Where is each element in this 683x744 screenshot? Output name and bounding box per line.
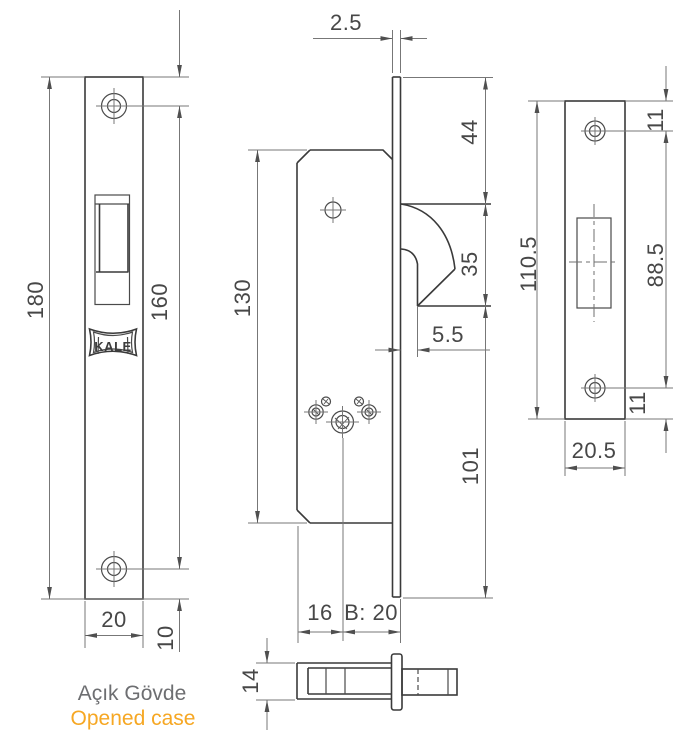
latch-opening xyxy=(95,195,130,305)
dim-label-44: 44 xyxy=(457,119,482,144)
arrowhead xyxy=(177,65,182,77)
body-outline xyxy=(297,77,491,641)
case-top-outline xyxy=(297,654,457,710)
arrowhead xyxy=(298,630,310,635)
strike-outline xyxy=(565,101,625,419)
dim-label-2-5: 2.5 xyxy=(330,10,362,35)
arrowhead xyxy=(483,204,488,216)
arrowhead xyxy=(131,633,143,638)
dim-label-20-5: 20.5 xyxy=(572,438,617,463)
arrowhead xyxy=(401,36,413,41)
screw-hole-bottom xyxy=(96,551,132,587)
caption-english: Opened case xyxy=(71,707,196,730)
strike-hole-bottom xyxy=(581,374,609,402)
arrowhead xyxy=(483,294,488,306)
faceplate-outline: KALE xyxy=(85,77,143,599)
body-upper-hole xyxy=(320,197,346,223)
arrowhead xyxy=(177,599,182,611)
arrowhead xyxy=(535,101,540,113)
arrowhead xyxy=(255,511,260,523)
arrowhead xyxy=(483,192,488,204)
arrowhead xyxy=(177,557,182,569)
case-top-view: 14 xyxy=(238,638,457,730)
caption-turkish: Açık Gövde xyxy=(78,682,187,705)
arrowhead xyxy=(613,466,625,471)
arrowhead xyxy=(85,633,97,638)
arrowhead xyxy=(483,586,488,598)
kale-logo: KALE xyxy=(90,329,137,356)
dim-label-130: 130 xyxy=(230,279,255,317)
arrowhead xyxy=(389,348,401,353)
strike-plate-view: 110.5 11 88.5 11 20.5 xyxy=(516,66,673,476)
dim-label-110-5: 110.5 xyxy=(516,236,541,292)
arrowhead xyxy=(483,78,488,90)
arrowhead xyxy=(177,106,182,118)
latch-bolt-top xyxy=(402,669,457,695)
strike-slot xyxy=(569,204,619,322)
dim-label-88-5: 88.5 xyxy=(643,243,668,288)
arrowhead xyxy=(483,306,488,318)
caption: Açık Gövde Opened case xyxy=(71,682,196,730)
strike-hole-top xyxy=(581,117,609,145)
brand-text: KALE xyxy=(94,339,131,354)
faceplate-front-view: KALE 180 160 10 xyxy=(23,10,189,652)
arrowhead xyxy=(664,419,669,431)
dim-label-20: 20 xyxy=(101,607,126,632)
dim-label-35: 35 xyxy=(457,251,482,276)
arrowhead xyxy=(389,630,401,635)
arrowhead xyxy=(265,700,270,712)
screw-hole-top xyxy=(96,88,132,124)
arrowhead xyxy=(535,407,540,419)
lock-body-view: 2.5 130 44 35 101 5.5 16 B: 20 xyxy=(230,10,493,643)
arrowhead xyxy=(343,630,355,635)
dim-label-5-5: 5.5 xyxy=(432,322,464,347)
arrowhead xyxy=(331,630,343,635)
arrowhead xyxy=(381,36,393,41)
arrowhead xyxy=(418,348,430,353)
dim-label-backset: B: 20 xyxy=(344,600,398,625)
dim-label-11-top: 11 xyxy=(643,108,668,132)
arrowhead xyxy=(664,376,669,388)
arrowhead xyxy=(265,651,270,663)
arrowhead xyxy=(255,150,260,162)
dim-label-14: 14 xyxy=(238,668,263,693)
technical-drawing: KALE 180 160 10 xyxy=(0,0,683,744)
arrowhead xyxy=(664,89,669,101)
dim-label-180: 180 xyxy=(23,281,48,319)
arrowhead xyxy=(565,466,577,471)
body-dimensions: 2.5 130 44 35 101 5.5 16 B: 20 xyxy=(230,10,493,643)
dim-label-101: 101 xyxy=(458,447,483,485)
arrowhead xyxy=(47,77,52,89)
dim-label-160: 160 xyxy=(147,283,172,321)
arrowhead xyxy=(47,587,52,599)
dim-label-10: 10 xyxy=(153,625,178,650)
dim-label-11-bottom: 11 xyxy=(625,391,650,415)
dim-label-16: 16 xyxy=(307,600,332,625)
